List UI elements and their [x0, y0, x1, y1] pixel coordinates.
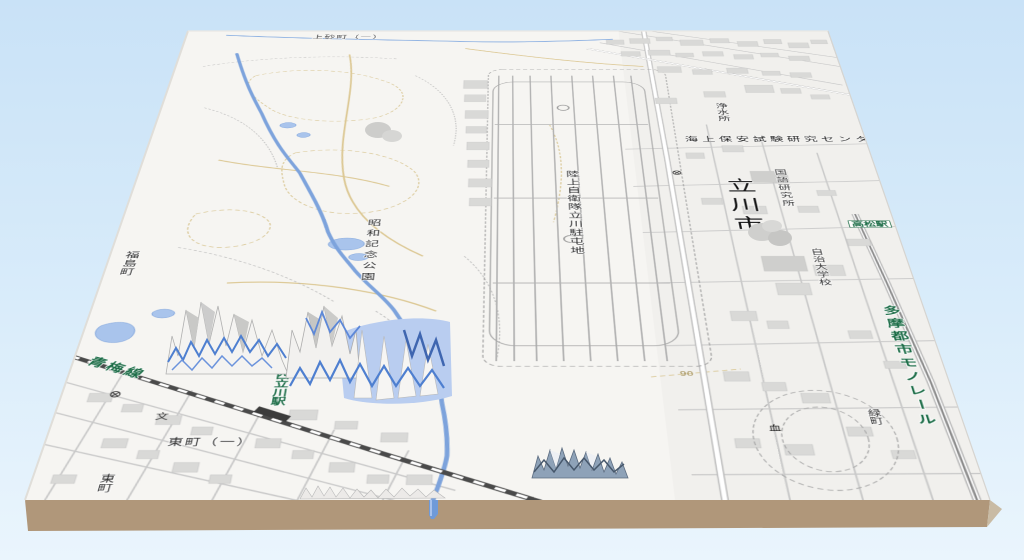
label-kaijo-hoan-center: 海上保安試験研究センター	[684, 136, 890, 142]
map-linework: 文 血 90	[25, 31, 990, 500]
label-higashicho-1chome: 東町（一）	[167, 437, 255, 446]
map-3d-viewport[interactable]: 文 血 90 上砂町（一） 浄水所 海上保安試験研究センター 国語研究所 立川市…	[0, 0, 1024, 560]
monument-icon: 血	[768, 423, 783, 432]
label-josuisho: 浄水所	[713, 103, 729, 122]
label-kamisunacho: 上砂町（一）	[312, 35, 385, 40]
label-midoricho: 緑町	[866, 409, 884, 425]
contour-elevation-label: 90	[679, 371, 694, 378]
map-scene: 文 血 90 上砂町（一） 浄水所 海上保安試験研究センター 国語研究所 立川市…	[0, 0, 1024, 560]
label-takamatsu-station: 高松駅	[847, 221, 892, 228]
map-terrain-surface[interactable]: 文 血 90 上砂町（一） 浄水所 海上保安試験研究センター 国語研究所 立川市…	[25, 31, 990, 500]
label-higashicho: 東町	[95, 474, 115, 493]
school-icon: 文	[154, 411, 170, 421]
